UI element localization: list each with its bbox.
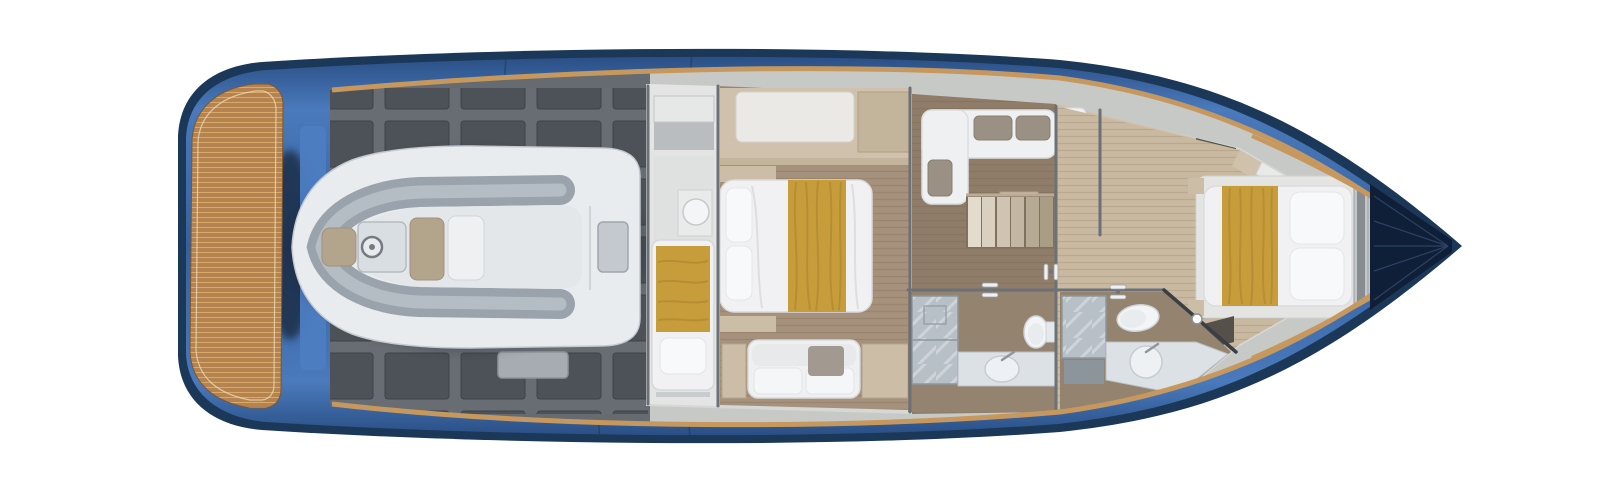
l-sofa-pillow-3 (928, 160, 952, 196)
master-sofa-gray-throw (808, 346, 844, 376)
vip-bed-step-top (1188, 178, 1204, 194)
crew-pillow (660, 338, 706, 374)
vip-pillow-1 (1290, 192, 1344, 244)
crew-cabin (648, 84, 718, 406)
companionway-stairs (966, 195, 1054, 248)
crew-sink (683, 199, 709, 225)
master-cabin (720, 86, 910, 410)
tender-copilot-seat (448, 216, 484, 280)
handle-pivot (988, 288, 992, 292)
vip-shower-mat (1064, 360, 1104, 384)
stair-tread-5 (1026, 197, 1039, 247)
master-cabinet-white-front (736, 92, 854, 142)
glass-door-knob (1192, 314, 1202, 324)
deck-hatch (498, 352, 568, 378)
master-shelf-edge (720, 158, 910, 165)
master-bathroom (908, 292, 1056, 412)
stair-tread-6 (1040, 197, 1053, 247)
master-sofa (748, 340, 860, 398)
master-cabinet-wood-box (858, 92, 910, 152)
master-pillow-2 (726, 246, 752, 300)
master-side-table-right (862, 344, 908, 398)
l-sofa-pillow-1 (974, 116, 1012, 140)
handle-pivot (1116, 290, 1120, 294)
anchor-locker-wedge (1370, 184, 1452, 310)
stair-tread-1 (968, 197, 981, 247)
vip-shower (1062, 296, 1106, 358)
tender-engine-cover (598, 222, 628, 272)
teak-platform (190, 84, 283, 408)
tender-helm-seat (410, 218, 444, 280)
stair-tread-2 (982, 197, 995, 247)
stair-tread-3 (997, 197, 1010, 247)
stair-tread-4 (1011, 197, 1024, 247)
vip-pillow-2 (1290, 248, 1344, 300)
tender-wheel-hub (369, 244, 375, 250)
yacht-floorplan-rendering (0, 0, 1600, 491)
tender (286, 146, 650, 354)
deck-plan-canvas (0, 0, 1600, 491)
tender-bow-seat (322, 228, 356, 266)
master-side-table-left (722, 344, 746, 398)
l-sofa-pillow-2 (1016, 116, 1050, 140)
crew-berth-footboard (656, 392, 710, 397)
crew-cabinet-front (654, 96, 714, 122)
master-toilet-seat (1028, 323, 1044, 345)
master-pillow-1 (726, 188, 752, 242)
anchor-locker (1370, 184, 1452, 310)
master-nightstand-bottom (720, 316, 776, 332)
master-sofa-cushion-1 (754, 368, 802, 394)
handle-pivot (1049, 270, 1053, 274)
